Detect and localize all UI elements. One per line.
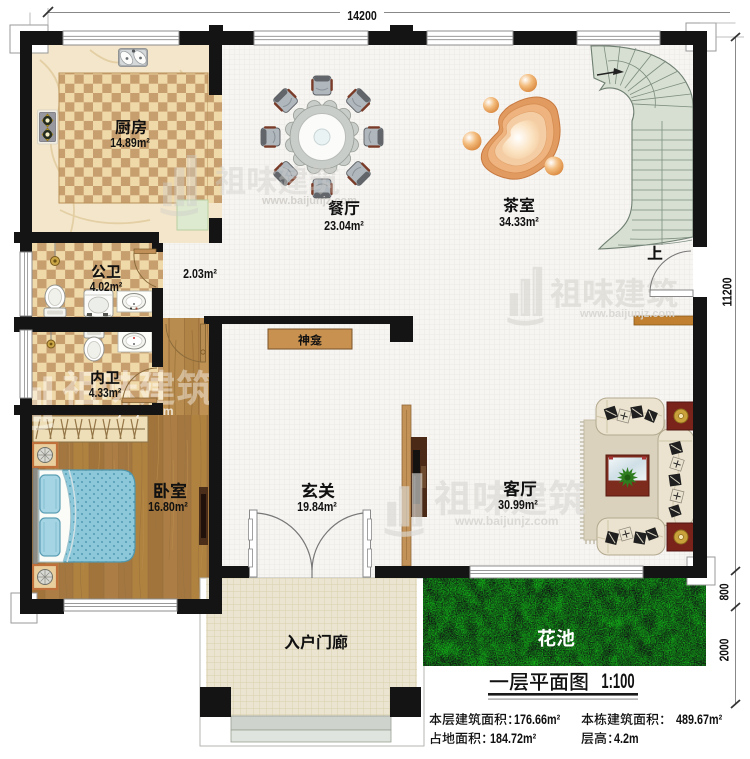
svg-text:4.2m: 4.2m (614, 731, 639, 746)
svg-text:2000: 2000 (719, 639, 732, 662)
svg-text:1:100: 1:100 (601, 669, 634, 693)
svg-text:4.02m²: 4.02m² (90, 281, 123, 294)
svg-text:14.89m²: 14.89m² (110, 135, 150, 150)
svg-text:www.baijunjz.com: www.baijunjz.com (454, 514, 559, 528)
svg-text:www.baijunjz.com: www.baijunjz.com (579, 308, 675, 320)
svg-text:489.67m²: 489.67m² (676, 712, 722, 727)
svg-text:16.80m²: 16.80m² (148, 499, 188, 514)
svg-text:2.03m²: 2.03m² (183, 266, 217, 281)
svg-text:800: 800 (719, 583, 732, 600)
svg-text:11200: 11200 (719, 277, 734, 306)
svg-text:34.33m²: 34.33m² (499, 214, 539, 229)
svg-text:176.66m²: 176.66m² (514, 712, 560, 727)
svg-text:19.84m²: 19.84m² (297, 499, 337, 514)
svg-text:www.baijunjz.com: www.baijunjz.com (261, 195, 357, 207)
svg-text:184.72m²: 184.72m² (490, 731, 536, 746)
svg-text:14200: 14200 (347, 8, 377, 23)
svg-text:4.33m²: 4.33m² (89, 387, 122, 400)
svg-text:30.99m²: 30.99m² (498, 497, 538, 512)
svg-text:23.04m²: 23.04m² (324, 218, 364, 233)
